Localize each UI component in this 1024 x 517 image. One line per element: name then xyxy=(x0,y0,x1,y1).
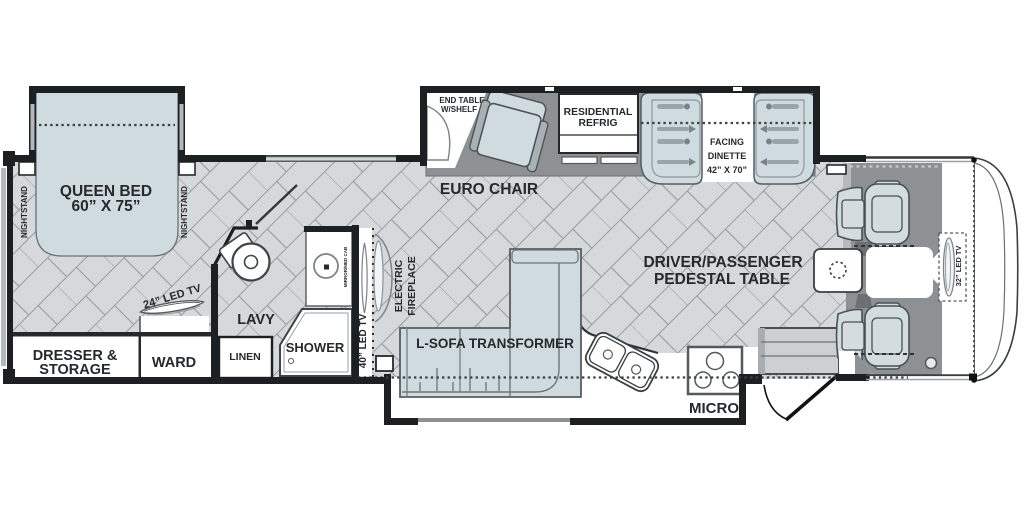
svg-text:STORAGE: STORAGE xyxy=(39,362,111,378)
svg-text:WARD: WARD xyxy=(152,355,196,371)
svg-text:FACING: FACING xyxy=(710,137,744,147)
svg-text:MICRO: MICRO xyxy=(689,400,739,417)
svg-text:MIRROR/MED CAB: MIRROR/MED CAB xyxy=(343,246,348,287)
svg-text:40” LED TV: 40” LED TV xyxy=(358,313,369,368)
svg-text:FIREPLACE: FIREPLACE xyxy=(406,256,418,316)
svg-text:42” X 70”: 42” X 70” xyxy=(707,165,747,175)
svg-text:RESIDENTIAL: RESIDENTIAL xyxy=(564,107,633,118)
svg-text:PEDESTAL TABLE: PEDESTAL TABLE xyxy=(654,271,790,288)
svg-text:LAVY: LAVY xyxy=(237,312,275,328)
svg-text:LINEN: LINEN xyxy=(229,351,261,363)
svg-text:NIGHTSTAND: NIGHTSTAND xyxy=(180,186,189,238)
svg-text:DINETTE: DINETTE xyxy=(708,151,747,161)
svg-text:32” LED TV: 32” LED TV xyxy=(954,246,963,287)
svg-text:REFRIG: REFRIG xyxy=(579,118,618,129)
svg-text:SHOWER: SHOWER xyxy=(286,340,345,355)
svg-text:DRIVER/PASSENGER: DRIVER/PASSENGER xyxy=(643,254,802,271)
svg-text:NIGHTSTAND: NIGHTSTAND xyxy=(20,186,29,238)
svg-text:W/SHELF: W/SHELF xyxy=(441,105,477,114)
svg-text:60” X 75”: 60” X 75” xyxy=(72,198,141,215)
svg-text:END TABLE: END TABLE xyxy=(439,96,485,105)
svg-text:ELECTRIC: ELECTRIC xyxy=(393,259,405,312)
svg-text:L-SOFA TRANSFORMER: L-SOFA TRANSFORMER xyxy=(416,336,574,351)
svg-text:EURO CHAIR: EURO CHAIR xyxy=(440,181,538,198)
